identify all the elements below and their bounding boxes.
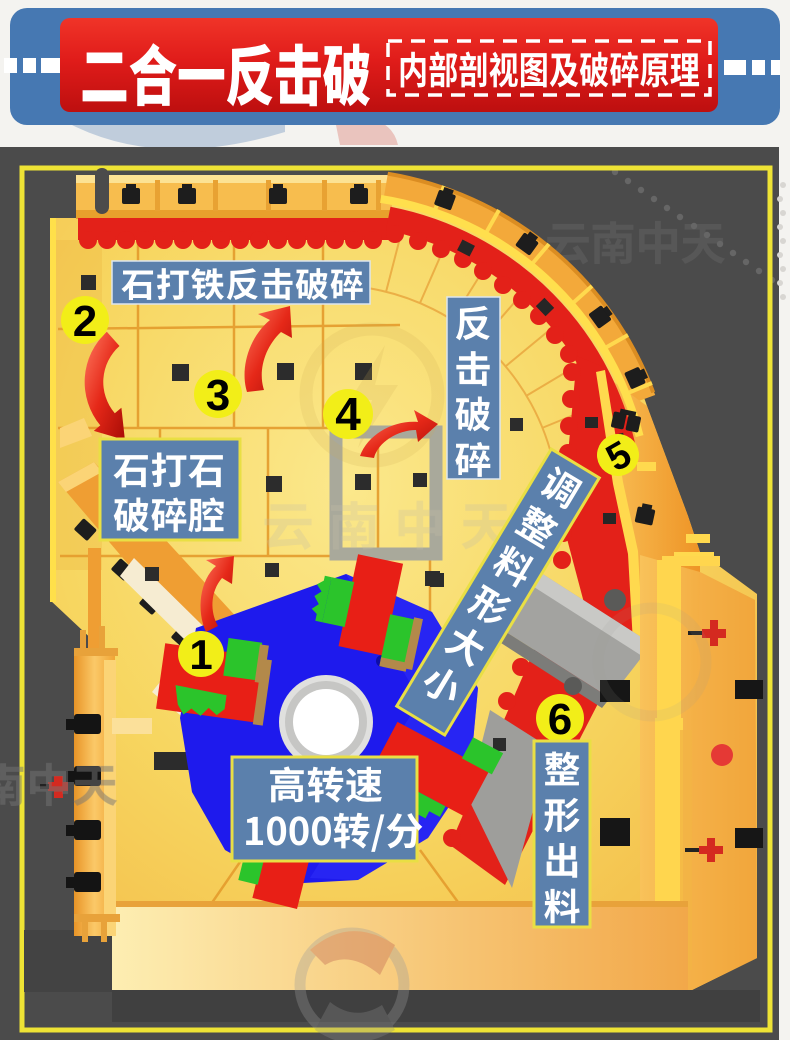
svg-text:1: 1 — [189, 631, 212, 678]
svg-text:3: 3 — [206, 371, 230, 420]
svg-text:6: 6 — [548, 695, 572, 744]
svg-text:2: 2 — [73, 297, 97, 346]
svg-text:4: 4 — [335, 388, 361, 440]
